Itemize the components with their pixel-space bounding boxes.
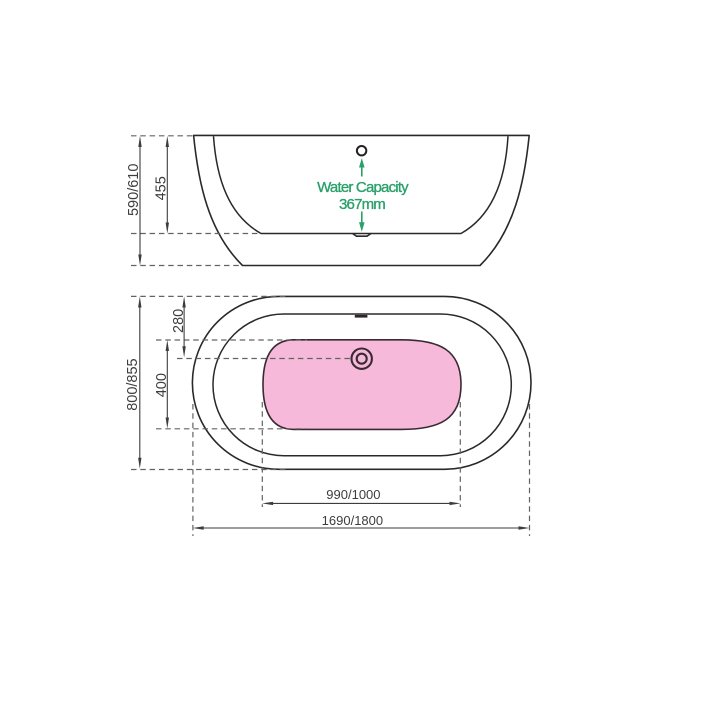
svg-text:400: 400 bbox=[154, 373, 170, 397]
svg-text:280: 280 bbox=[171, 309, 187, 333]
svg-text:Water Capacity: Water Capacity bbox=[317, 179, 409, 196]
svg-text:1690/1800: 1690/1800 bbox=[322, 513, 383, 528]
svg-text:590/610: 590/610 bbox=[126, 164, 142, 216]
svg-text:990/1000: 990/1000 bbox=[326, 487, 380, 502]
svg-text:367mm: 367mm bbox=[339, 196, 385, 213]
svg-text:800/855: 800/855 bbox=[125, 358, 141, 410]
svg-text:455: 455 bbox=[154, 176, 170, 200]
